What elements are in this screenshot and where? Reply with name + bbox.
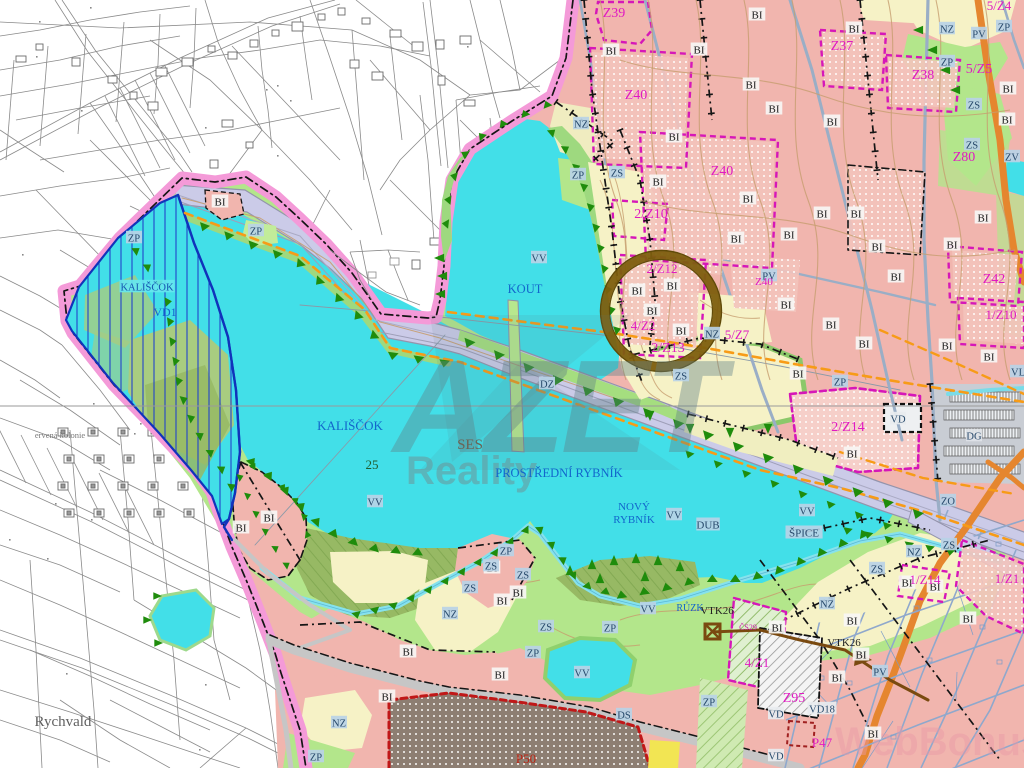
svg-text:RYBNÍK: RYBNÍK	[613, 514, 655, 526]
svg-text:BI: BI	[606, 46, 617, 58]
svg-text:BI: BI	[497, 596, 508, 608]
svg-text:Z40: Z40	[755, 276, 773, 288]
svg-text:BI: BI	[403, 647, 414, 659]
svg-text:5/Z5: 5/Z5	[966, 62, 992, 77]
svg-text:ZS: ZS	[517, 571, 529, 582]
svg-text:BI: BI	[752, 10, 763, 22]
svg-text:2/Z12: 2/Z12	[646, 261, 677, 276]
svg-text:VV: VV	[531, 254, 547, 265]
svg-text:1/Z10: 1/Z10	[985, 307, 1016, 322]
svg-text:BI: BI	[1002, 115, 1013, 127]
svg-text:DZ: DZ	[540, 380, 554, 391]
svg-text:4/Z2: 4/Z2	[631, 318, 656, 333]
svg-text:BI: BI	[978, 213, 989, 225]
svg-text:BI: BI	[793, 369, 804, 381]
svg-text:KALIŠČOK: KALIŠČOK	[120, 282, 174, 294]
svg-text:VD: VD	[768, 752, 784, 763]
svg-text:SES: SES	[457, 437, 483, 453]
svg-text:BI: BI	[832, 673, 843, 685]
svg-text:BI: BI	[826, 320, 837, 332]
svg-text:DUB: DUB	[696, 520, 719, 532]
svg-text:ZP: ZP	[998, 23, 1010, 34]
svg-text:BI: BI	[781, 300, 792, 312]
svg-text:BI: BI	[947, 240, 958, 252]
svg-text:ervená kolonie: ervená kolonie	[35, 430, 85, 440]
svg-text:BI: BI	[984, 352, 995, 364]
svg-text:NZ: NZ	[705, 330, 719, 341]
svg-text:PV: PV	[972, 30, 986, 41]
svg-text:BI: BI	[772, 623, 783, 635]
svg-text:ZS: ZS	[485, 562, 497, 573]
svg-text:BI: BI	[856, 650, 867, 662]
svg-text:WebBonus: WebBonus	[835, 720, 1024, 764]
svg-text:P50: P50	[516, 751, 536, 766]
svg-text:ZV: ZV	[1005, 153, 1019, 164]
svg-text:BI: BI	[382, 692, 393, 704]
svg-text:5/Z4: 5/Z4	[987, 0, 1012, 13]
svg-text:BI: BI	[264, 513, 275, 525]
svg-text:2/Z14: 2/Z14	[831, 420, 864, 435]
svg-text:BI: BI	[731, 234, 742, 246]
svg-text:ZP: ZP	[500, 547, 512, 558]
svg-text:BI: BI	[676, 326, 687, 338]
svg-text:NZ: NZ	[940, 25, 954, 36]
svg-text:BI: BI	[868, 729, 879, 741]
svg-text:VTK26: VTK26	[827, 637, 861, 649]
svg-text:ZP: ZP	[703, 698, 715, 709]
svg-text:NZ: NZ	[332, 719, 346, 730]
svg-text:ZP: ZP	[941, 58, 953, 69]
svg-text:ZS: ZS	[871, 565, 883, 576]
svg-text:BI: BI	[236, 523, 247, 535]
svg-text:Rychvald: Rychvald	[35, 714, 92, 730]
svg-text:Z37: Z37	[831, 39, 854, 54]
svg-text:BI: BI	[847, 616, 858, 628]
svg-text:DS: DS	[617, 711, 631, 722]
svg-text:BI: BI	[942, 341, 953, 353]
svg-text:PROSTŘEDNÍ RYBNÍK: PROSTŘEDNÍ RYBNÍK	[495, 466, 622, 480]
svg-text:BI: BI	[1003, 84, 1014, 96]
svg-text:Z39: Z39	[603, 6, 626, 21]
svg-text:Z95: Z95	[783, 691, 806, 706]
svg-text:1/Z14: 1/Z14	[909, 572, 941, 587]
svg-text:BI: BI	[817, 209, 828, 221]
svg-text:Z40: Z40	[625, 88, 648, 103]
svg-text:BI: BI	[495, 670, 506, 682]
svg-text:VTK26: VTK26	[700, 605, 734, 617]
svg-text:5/Z7: 5/Z7	[725, 327, 750, 342]
svg-text:2/Z13: 2/Z13	[651, 341, 684, 356]
svg-text:25: 25	[366, 457, 379, 472]
svg-text:BI: BI	[827, 117, 838, 129]
svg-text:BI: BI	[743, 194, 754, 206]
svg-text:ZP: ZP	[250, 227, 262, 238]
svg-text:Z40: Z40	[711, 164, 734, 179]
svg-text:VL: VL	[1011, 368, 1024, 379]
svg-text:BI: BI	[784, 230, 795, 242]
svg-text:ZP: ZP	[604, 624, 616, 635]
svg-text:Z42: Z42	[983, 272, 1006, 287]
svg-text:BI: BI	[847, 449, 858, 461]
svg-text:ZP: ZP	[128, 234, 140, 245]
svg-text:NZ: NZ	[574, 120, 588, 131]
svg-text:ZS: ZS	[943, 541, 955, 552]
svg-text:BI: BI	[746, 80, 757, 92]
svg-text:BI: BI	[849, 24, 860, 36]
svg-text:BI: BI	[647, 306, 658, 318]
svg-text:ZP: ZP	[572, 171, 584, 182]
svg-text:ZP: ZP	[527, 649, 539, 660]
svg-text:NOVÝ: NOVÝ	[618, 501, 650, 513]
svg-text:BI: BI	[632, 286, 643, 298]
svg-text:KOUT: KOUT	[508, 282, 543, 296]
svg-text:ŠPICE: ŠPICE	[789, 528, 819, 540]
svg-text:Z80: Z80	[953, 150, 976, 165]
svg-text:2/Z10: 2/Z10	[634, 207, 667, 222]
svg-text:NZ: NZ	[907, 548, 921, 559]
svg-text:VV: VV	[666, 511, 682, 522]
svg-text:BI: BI	[653, 177, 664, 189]
svg-text:VD18: VD18	[809, 705, 835, 716]
svg-text:BI: BI	[851, 209, 862, 221]
svg-text:ZS: ZS	[968, 101, 980, 112]
svg-text:DG: DG	[966, 432, 982, 443]
svg-text:ZP: ZP	[834, 378, 846, 389]
svg-text:VD: VD	[890, 415, 906, 426]
svg-text:P47: P47	[812, 735, 833, 750]
svg-text:4/Z1: 4/Z1	[745, 655, 770, 670]
svg-text:VV: VV	[367, 498, 383, 509]
svg-text:NZ: NZ	[443, 610, 457, 621]
svg-text:BI: BI	[667, 281, 678, 293]
svg-text:BI: BI	[769, 104, 780, 116]
svg-text:BI: BI	[694, 45, 705, 57]
svg-text:BI: BI	[669, 132, 680, 144]
svg-text:VV: VV	[574, 669, 590, 680]
svg-text:VD: VD	[768, 710, 784, 721]
svg-text:ZP: ZP	[310, 753, 322, 764]
svg-text:ZS: ZS	[464, 584, 476, 595]
svg-text:NZ: NZ	[820, 600, 834, 611]
svg-text:1/Z1: 1/Z1	[995, 571, 1020, 586]
svg-text:VV: VV	[640, 605, 656, 616]
svg-text:BI: BI	[872, 242, 883, 254]
svg-text:VD1: VD1	[153, 305, 176, 319]
svg-text:KALIŠČOK: KALIŠČOK	[317, 418, 383, 433]
svg-text:BI: BI	[859, 339, 870, 351]
svg-text:BI: BI	[513, 588, 524, 600]
svg-text:ZS: ZS	[675, 372, 687, 383]
svg-text:BI: BI	[215, 197, 226, 209]
svg-text:ZS: ZS	[611, 169, 623, 180]
svg-text:Z38: Z38	[912, 68, 935, 83]
svg-text:ZS: ZS	[540, 623, 552, 634]
svg-text:VV: VV	[799, 507, 815, 518]
svg-text:ZO: ZO	[941, 497, 955, 508]
svg-text:ČS29: ČS29	[739, 622, 757, 632]
svg-text:BI: BI	[891, 272, 902, 284]
svg-text:PV: PV	[873, 668, 887, 679]
svg-text:BI: BI	[963, 614, 974, 626]
